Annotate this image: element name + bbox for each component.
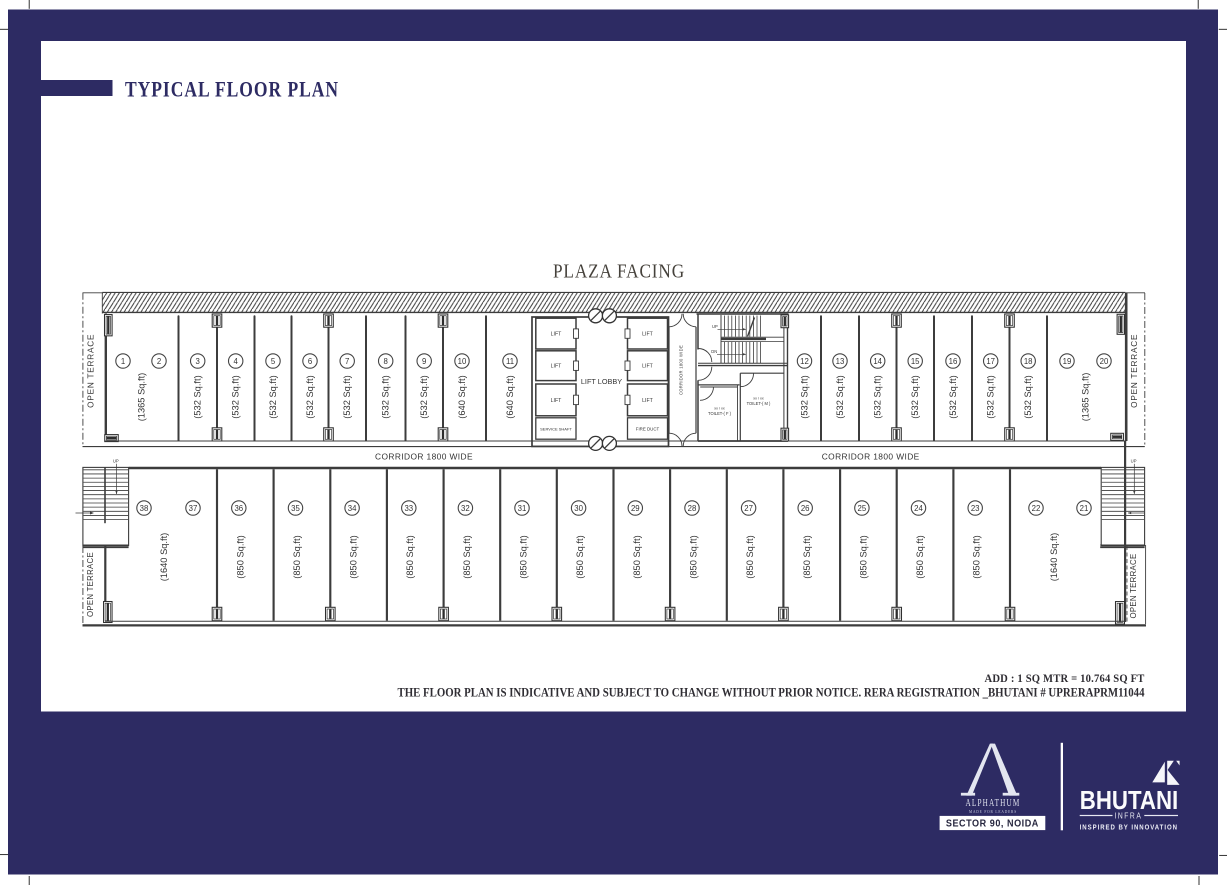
svg-text:(532 Sq.ft): (532 Sq.ft) <box>342 375 352 418</box>
svg-text:26: 26 <box>801 504 810 513</box>
svg-text:CORRIDOR 1800 WIDE: CORRIDOR 1800 WIDE <box>375 451 473 461</box>
svg-text:(850 Sq.ft): (850 Sq.ft) <box>802 535 812 578</box>
svg-text:(532 Sq.ft): (532 Sq.ft) <box>193 375 203 418</box>
svg-text:(532 Sq.ft): (532 Sq.ft) <box>305 375 315 418</box>
svg-text:(850 Sq.ft): (850 Sq.ft) <box>349 535 359 578</box>
svg-text:(532 Sq.ft): (532 Sq.ft) <box>873 375 883 418</box>
svg-text:(532 Sq.ft): (532 Sq.ft) <box>231 375 241 418</box>
svg-text:OPEN TERRACE: OPEN TERRACE <box>1129 554 1138 619</box>
svg-text:24: 24 <box>914 504 923 513</box>
svg-text:LIFT: LIFT <box>642 364 653 370</box>
svg-text:11: 11 <box>506 357 514 366</box>
svg-text:UP: UP <box>1131 459 1137 464</box>
svg-text:30: 30 <box>574 504 583 513</box>
svg-text:LIFT: LIFT <box>551 332 562 338</box>
svg-text:TOILET-( F ): TOILET-( F ) <box>708 411 732 416</box>
svg-text:(850 Sq.ft): (850 Sq.ft) <box>632 535 642 578</box>
svg-text:7: 7 <box>345 357 349 366</box>
svg-text:17: 17 <box>986 357 995 366</box>
svg-text:28: 28 <box>688 504 697 513</box>
svg-text:(850 Sq.ft): (850 Sq.ft) <box>519 535 529 578</box>
svg-text:29: 29 <box>631 504 640 513</box>
svg-text:22: 22 <box>1032 504 1041 513</box>
svg-text:(532 Sq.ft): (532 Sq.ft) <box>948 375 958 418</box>
svg-text:(532 Sq.ft): (532 Sq.ft) <box>1023 375 1033 418</box>
svg-text:31: 31 <box>518 504 527 513</box>
svg-text:34: 34 <box>348 504 357 513</box>
svg-text:LIFT: LIFT <box>642 398 653 404</box>
svg-text:xx / xx: xx / xx <box>753 397 764 401</box>
svg-text:INSPIRED BY INNOVATION: INSPIRED BY INNOVATION <box>1080 824 1178 831</box>
svg-text:3: 3 <box>196 357 200 366</box>
svg-text:(850 Sq.ft): (850 Sq.ft) <box>405 535 415 578</box>
svg-text:(1640 Sq.ft): (1640 Sq.ft) <box>159 533 169 582</box>
svg-text:LIFT: LIFT <box>642 332 653 338</box>
svg-text:(532 Sq.ft): (532 Sq.ft) <box>835 375 845 418</box>
svg-text:SECTOR 90, NOIDA: SECTOR 90, NOIDA <box>946 819 1039 830</box>
svg-text:37: 37 <box>189 504 198 513</box>
svg-text:(850 Sq.ft): (850 Sq.ft) <box>915 535 925 578</box>
svg-text:SERVICE SHAFT: SERVICE SHAFT <box>540 427 572 432</box>
svg-text:LIFT LOBBY: LIFT LOBBY <box>581 377 622 386</box>
svg-text:xx / xx: xx / xx <box>714 407 725 411</box>
svg-text:(850 Sq.ft): (850 Sq.ft) <box>235 535 245 578</box>
svg-text:(850 Sq.ft): (850 Sq.ft) <box>972 535 982 578</box>
svg-text:23: 23 <box>971 504 980 513</box>
svg-text:35: 35 <box>291 504 300 513</box>
svg-text:18: 18 <box>1024 357 1033 366</box>
svg-text:(850 Sq.ft): (850 Sq.ft) <box>858 535 868 578</box>
svg-text:TOILET-( M ): TOILET-( M ) <box>747 401 771 406</box>
svg-text:(1365 Sq.ft): (1365 Sq.ft) <box>1081 373 1091 422</box>
svg-text:16: 16 <box>949 357 958 366</box>
svg-text:12: 12 <box>800 357 809 366</box>
svg-text:CORRIDOR 1800 WIDE: CORRIDOR 1800 WIDE <box>679 345 684 395</box>
svg-text:32: 32 <box>461 504 470 513</box>
svg-text:UP: UP <box>113 459 119 464</box>
svg-text:19: 19 <box>1063 357 1072 366</box>
svg-text:(640 Sq.ft): (640 Sq.ft) <box>505 375 515 418</box>
svg-text:9: 9 <box>422 357 426 366</box>
svg-text:PLAZA FACING: PLAZA FACING <box>553 261 685 283</box>
svg-text:8: 8 <box>384 357 388 366</box>
svg-text:(640 Sq.ft): (640 Sq.ft) <box>457 375 467 418</box>
svg-text:2: 2 <box>157 357 161 366</box>
svg-text:(1365 Sq.ft): (1365 Sq.ft) <box>137 373 147 422</box>
svg-text:25: 25 <box>858 504 867 513</box>
svg-text:(532 Sq.ft): (532 Sq.ft) <box>381 375 391 418</box>
svg-text:(850 Sq.ft): (850 Sq.ft) <box>745 535 755 578</box>
svg-text:15: 15 <box>911 357 920 366</box>
svg-text:36: 36 <box>234 504 243 513</box>
svg-text:33: 33 <box>404 504 413 513</box>
svg-text:MADE FOR LEADERS: MADE FOR LEADERS <box>969 809 1017 814</box>
svg-text:(532 Sq.ft): (532 Sq.ft) <box>986 375 996 418</box>
svg-text:4: 4 <box>234 357 239 366</box>
svg-text:6: 6 <box>308 357 312 366</box>
svg-text:CORRIDOR 1800 WIDE: CORRIDOR 1800 WIDE <box>822 451 920 461</box>
svg-text:5: 5 <box>271 357 276 366</box>
svg-text:(850 Sq.ft): (850 Sq.ft) <box>575 535 585 578</box>
svg-text:(1640 Sq.ft): (1640 Sq.ft) <box>1049 533 1059 582</box>
svg-text:(850 Sq.ft): (850 Sq.ft) <box>689 535 699 578</box>
svg-text:LIFT: LIFT <box>551 364 562 370</box>
svg-text:20: 20 <box>1100 357 1109 366</box>
svg-text:ALPHATHUM: ALPHATHUM <box>966 798 1021 809</box>
svg-text:21: 21 <box>1080 504 1089 513</box>
svg-text:LIFT: LIFT <box>551 398 562 404</box>
svg-text:(532 Sq.ft): (532 Sq.ft) <box>910 375 920 418</box>
svg-text:(532 Sq.ft): (532 Sq.ft) <box>800 375 810 418</box>
svg-text:TYPICAL FLOOR PLAN: TYPICAL FLOOR PLAN <box>125 77 339 102</box>
svg-text:(532 Sq.ft): (532 Sq.ft) <box>419 375 429 418</box>
svg-text:UP: UP <box>712 324 718 329</box>
svg-text:OPEN TERRACE: OPEN TERRACE <box>86 552 95 617</box>
svg-text:INFRA: INFRA <box>1114 810 1142 820</box>
svg-text:ADD : 1 SQ MTR = 10.764 SQ FT: ADD : 1 SQ MTR = 10.764 SQ FT <box>985 671 1145 685</box>
svg-text:38: 38 <box>140 504 149 513</box>
svg-text:(532 Sq.ft): (532 Sq.ft) <box>268 375 278 418</box>
svg-text:FIRE DUCT: FIRE DUCT <box>636 427 660 432</box>
svg-text:13: 13 <box>836 357 845 366</box>
svg-text:27: 27 <box>744 504 753 513</box>
svg-text:OPEN TERRACE: OPEN TERRACE <box>1130 334 1139 408</box>
svg-text:1: 1 <box>121 357 125 366</box>
svg-text:14: 14 <box>873 357 882 366</box>
svg-text:DN: DN <box>711 349 717 354</box>
svg-text:THE FLOOR PLAN IS INDICATIVE A: THE FLOOR PLAN IS INDICATIVE AND SUBJECT… <box>398 685 1146 699</box>
svg-text:10: 10 <box>458 357 467 366</box>
svg-text:OPEN TERRACE: OPEN TERRACE <box>87 334 96 408</box>
svg-text:(850 Sq.ft): (850 Sq.ft) <box>462 535 472 578</box>
svg-text:(850 Sq.ft): (850 Sq.ft) <box>292 535 302 578</box>
